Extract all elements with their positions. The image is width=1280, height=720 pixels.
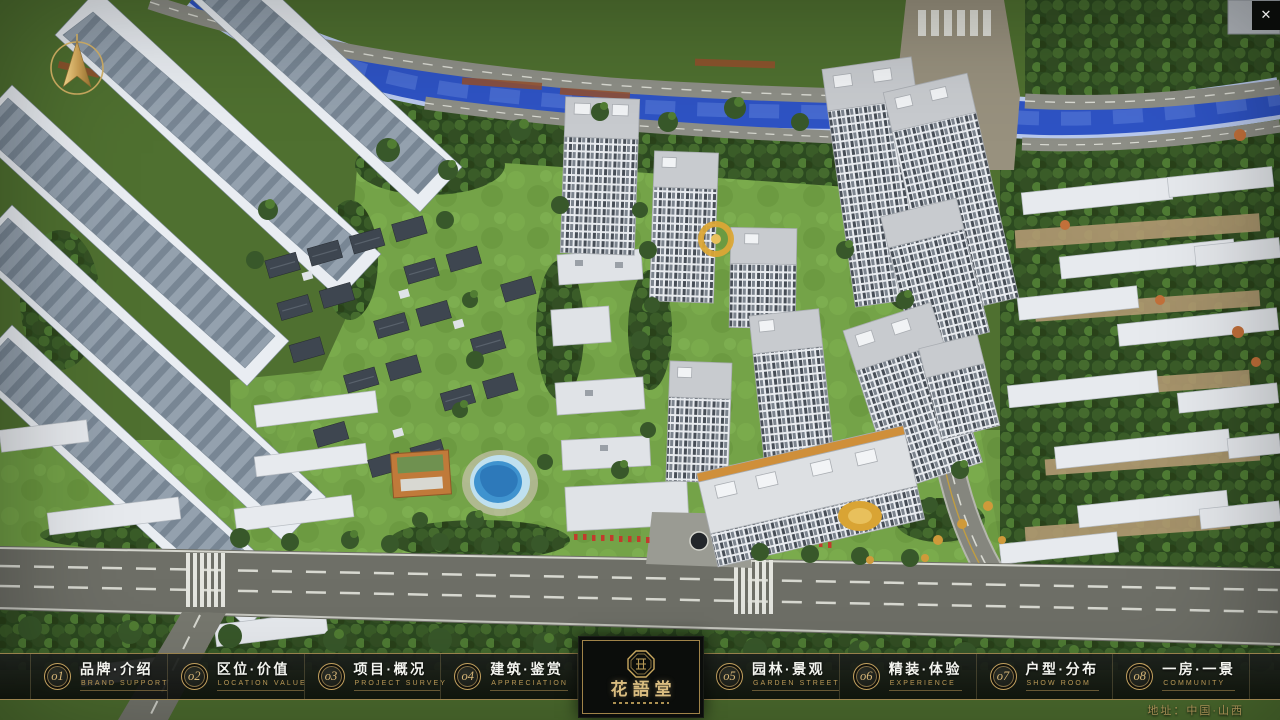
menu-badge-number: o4 bbox=[462, 669, 475, 684]
compass-north-arrow bbox=[63, 41, 91, 87]
menu-label-zh: 品牌·介绍 bbox=[80, 662, 167, 677]
logo-seal-emblem bbox=[627, 650, 655, 678]
menu-label-zh: 区位·价值 bbox=[217, 662, 304, 677]
menu-label-zh: 户型·分布 bbox=[1026, 662, 1099, 677]
menu-label-en: GARDEN STREET bbox=[752, 678, 839, 691]
menu-badge-o6: o6 bbox=[853, 663, 880, 690]
menu-badge-number: o7 bbox=[997, 669, 1010, 684]
menu-label-zh: 项目·概况 bbox=[354, 662, 441, 677]
compass-north-indicator bbox=[44, 26, 110, 104]
logo-title: 花語堂 bbox=[606, 680, 677, 699]
menu-item-project-overview[interactable]: o3 项目·概况PROJECT SURVEY bbox=[304, 654, 441, 699]
swimming-pool bbox=[462, 450, 538, 516]
project-logo-panel[interactable]: 花語堂 bbox=[578, 636, 704, 718]
clubhouse bbox=[391, 450, 452, 498]
menu-item-garden-landscape[interactable]: o5 园林·景观GARDEN STREET bbox=[702, 654, 839, 699]
menu-label-en: SHOW ROOM bbox=[1026, 678, 1099, 691]
menu-label-en: PROJECT SURVEY bbox=[354, 678, 441, 691]
menu-label-en: EXPERIENCE bbox=[889, 678, 962, 691]
menu-badge-o5: o5 bbox=[716, 663, 743, 690]
menu-badge-number: o3 bbox=[325, 669, 338, 684]
logo-subtitle-decoration bbox=[613, 702, 669, 704]
menu-label-en: APPRECIATION bbox=[490, 678, 568, 691]
menu-badge-number: o1 bbox=[51, 669, 64, 684]
menu-badge-o1: o1 bbox=[44, 663, 71, 690]
menu-badge-number: o5 bbox=[723, 669, 736, 684]
menu-label-zh: 一房·一景 bbox=[1162, 662, 1235, 677]
menu-badge-number: o8 bbox=[1134, 669, 1147, 684]
menu-badge-o4: o4 bbox=[454, 663, 481, 690]
menu-item-interior-experience[interactable]: o6 精装·体验EXPERIENCE bbox=[839, 654, 976, 699]
menu-group-left: o1 品牌·介绍BRAND SUPPORT o2 区位·价值LOCATION V… bbox=[0, 654, 578, 699]
close-button[interactable]: ✕ bbox=[1252, 1, 1280, 30]
menu-label-zh: 园林·景观 bbox=[752, 662, 839, 677]
menu-badge-o8: o8 bbox=[1126, 663, 1153, 690]
menu-item-architecture-appreciation[interactable]: o4 建筑·鉴赏APPRECIATION bbox=[440, 654, 578, 699]
menu-badge-number: o6 bbox=[860, 669, 873, 684]
menu-label-zh: 建筑·鉴赏 bbox=[490, 662, 568, 677]
presentation-stage: ✕ o1 品牌·介绍BRAND SUPPORT o2 区位·价值LOCATION… bbox=[0, 0, 1280, 720]
menu-badge-o7: o7 bbox=[990, 663, 1017, 690]
menu-label-en: BRAND SUPPORT bbox=[80, 678, 167, 691]
menu-label-en: COMMUNITY bbox=[1162, 678, 1235, 691]
menu-label-en: LOCATION VALUE bbox=[217, 678, 304, 691]
menu-badge-o3: o3 bbox=[318, 663, 345, 690]
menu-badge-number: o2 bbox=[188, 669, 201, 684]
menu-badge-o2: o2 bbox=[181, 663, 208, 690]
menu-group-right: o5 园林·景观GARDEN STREET o6 精装·体验EXPERIENCE… bbox=[702, 654, 1280, 699]
menu-item-location-value[interactable]: o2 区位·价值LOCATION VALUE bbox=[167, 654, 304, 699]
menu-item-floorplan-distribution[interactable]: o7 户型·分布SHOW ROOM bbox=[976, 654, 1113, 699]
site-plan-render bbox=[0, 0, 1280, 720]
menu-item-one-room-one-view[interactable]: o8 一房·一景COMMUNITY bbox=[1112, 654, 1250, 699]
menu-item-brand-intro[interactable]: o1 品牌·介绍BRAND SUPPORT bbox=[30, 654, 167, 699]
address-text: 地址：中国·山西 bbox=[1147, 702, 1244, 718]
menu-label-zh: 精装·体验 bbox=[889, 662, 962, 677]
